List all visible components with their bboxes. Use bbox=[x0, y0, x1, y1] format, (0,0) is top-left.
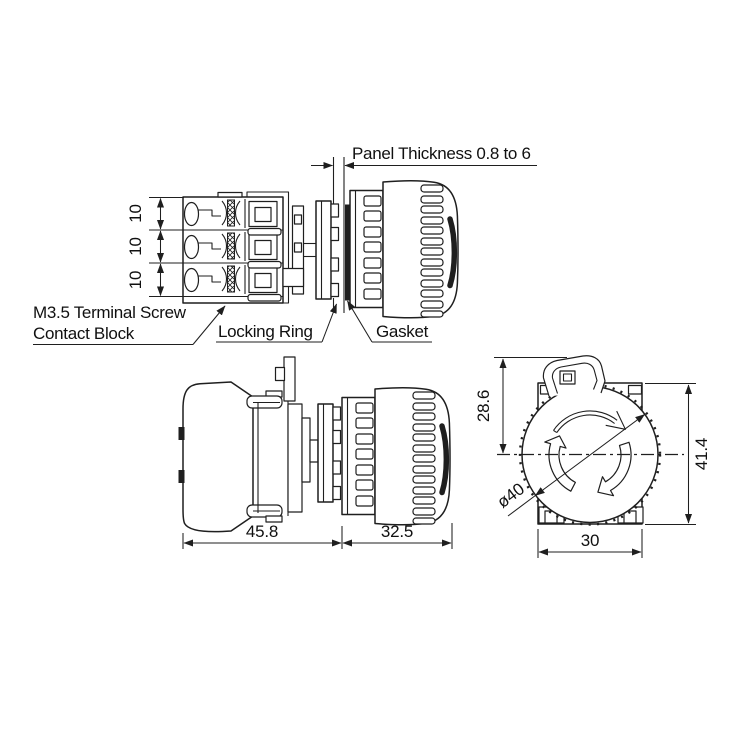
panel-thickness-dimension: Panel Thickness 0.8 to 6 bbox=[311, 144, 537, 166]
panel-thickness-label: Panel Thickness 0.8 to 6 bbox=[352, 144, 531, 163]
assembled-side-view: 45.8 32.5 bbox=[179, 357, 453, 549]
anti-rotation-tab bbox=[284, 357, 295, 401]
body-width-dim: 30 bbox=[581, 531, 600, 550]
pushbutton-dimension-drawing-page: Panel Thickness 0.8 to 6 10 10 10 M3.5 T… bbox=[0, 0, 730, 730]
total-height-dim: 41.4 bbox=[692, 438, 711, 470]
terminal-screw-label: M3.5 Terminal Screw bbox=[33, 303, 187, 322]
button-diameter-dim: ø40 bbox=[494, 479, 528, 511]
safety-lever-clip bbox=[543, 356, 605, 396]
mushroom-head-drawing bbox=[350, 181, 458, 318]
pitch-dim-2: 10 bbox=[126, 237, 145, 256]
behind-panel-depth-dim: 45.8 bbox=[246, 522, 278, 541]
pitch-dim-3: 10 bbox=[126, 271, 145, 290]
front-projection-dim: 32.5 bbox=[381, 522, 413, 541]
locking-ring-label: Locking Ring bbox=[218, 322, 313, 341]
locking-ring-drawing bbox=[316, 201, 339, 299]
gasket-label: Gasket bbox=[376, 322, 429, 341]
contact-block-housing bbox=[179, 357, 319, 532]
technical-drawing: Panel Thickness 0.8 to 6 10 10 10 M3.5 T… bbox=[0, 0, 730, 730]
center-from-top-dim: 28.6 bbox=[474, 390, 493, 422]
terminal-pitch-dimensions: 10 10 10 bbox=[126, 198, 184, 297]
mushroom-head-assembled bbox=[342, 388, 450, 525]
exploded-side-view: Panel Thickness 0.8 to 6 10 10 10 M3.5 T… bbox=[33, 144, 537, 345]
contact-block-drawing bbox=[183, 192, 289, 303]
front-view: 28.6 41.4 30 ø40 bbox=[474, 356, 711, 558]
contact-block-label: Contact Block bbox=[33, 324, 135, 343]
pitch-dim-1: 10 bbox=[126, 204, 145, 223]
locking-ring-assembled bbox=[318, 404, 341, 502]
